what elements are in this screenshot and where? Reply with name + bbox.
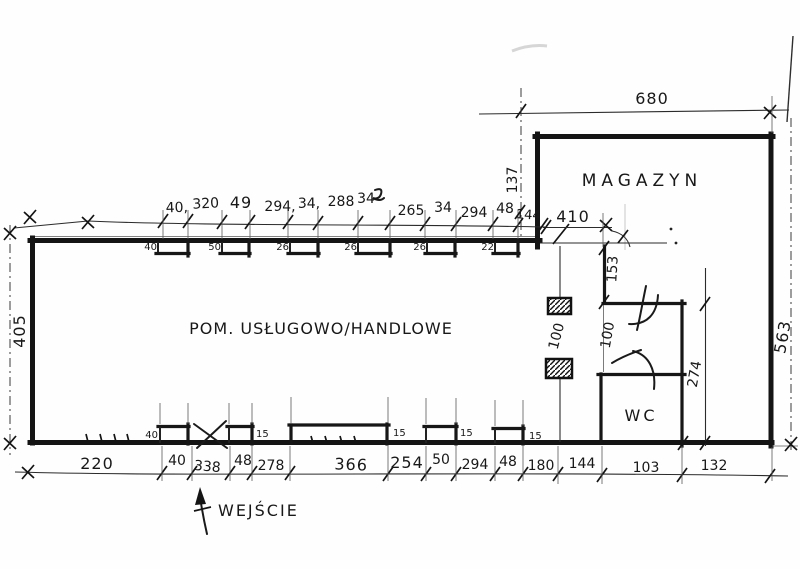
dim-137: 137 bbox=[505, 167, 521, 194]
dim-bottom-254: 254 bbox=[390, 453, 424, 472]
dim-top-320: 320 bbox=[192, 195, 220, 212]
dim-top-144: 144 bbox=[515, 207, 541, 224]
dim-top-265: 265 bbox=[398, 203, 425, 219]
dim-bottom-40: 40 bbox=[168, 453, 186, 469]
dim-405: 405 bbox=[10, 314, 29, 348]
dim-bottom-278: 278 bbox=[258, 458, 285, 474]
column-pillar-2 bbox=[546, 359, 572, 378]
dim-top-34-scribbled: 34 bbox=[357, 191, 375, 207]
dim-bottom-103: 103 bbox=[633, 460, 660, 476]
recess-top-5: 26 bbox=[413, 242, 426, 253]
dim-bottom-338: 338 bbox=[193, 458, 221, 476]
dim-bottom-132: 132 bbox=[701, 458, 728, 474]
dim-top-294b: 294 bbox=[461, 205, 488, 221]
room-label-magazyn: MAGAZYN bbox=[582, 171, 703, 191]
door-arc-wc bbox=[633, 351, 654, 389]
recess-top-3: 26 bbox=[276, 242, 289, 253]
dim-top-288: 288 bbox=[328, 194, 355, 210]
recess-bottom-1: 40 bbox=[145, 430, 158, 441]
dim-top-34a: 34, bbox=[298, 196, 320, 212]
dim-bottom-48b: 48 bbox=[499, 454, 517, 470]
dim-top-40: 40, bbox=[165, 200, 188, 217]
floor-plan-sketch: 40, 320 49 294, 34, 288 34 265 34 294 48… bbox=[0, 0, 800, 569]
dim-100-right: 100 bbox=[598, 321, 618, 350]
dim-274: 274 bbox=[685, 360, 705, 389]
entrance-annotation: WEJŚCIE bbox=[194, 487, 299, 534]
dimension-lines bbox=[4, 88, 797, 484]
room-label-wc: WC bbox=[625, 406, 658, 425]
entrance-label: WEJŚCIE bbox=[218, 501, 299, 520]
dim-top-34b: 34 bbox=[434, 200, 452, 216]
scan-artifacts bbox=[512, 36, 793, 250]
bottom-dim-line bbox=[15, 472, 788, 476]
dim-bottom-366: 366 bbox=[334, 454, 368, 474]
dim-bottom-220: 220 bbox=[80, 454, 114, 473]
dim-100-left: 100 bbox=[546, 321, 568, 351]
entrance-arrow-head-icon bbox=[195, 487, 206, 505]
bottom-dimension-labels: 220 40 338 48 278 366 254 50 294 48 180 … bbox=[80, 452, 727, 476]
recess-top-2: 50 bbox=[208, 242, 221, 253]
recess-top-1: 40 bbox=[144, 242, 157, 253]
column-pillar-1 bbox=[548, 298, 571, 314]
top-dimension-labels: 40, 320 49 294, 34, 288 34 265 34 294 48… bbox=[165, 189, 589, 226]
dim-153: 153 bbox=[604, 255, 621, 283]
dim-680: 680 bbox=[635, 89, 669, 108]
room-label-main: POM. USŁUGOWO/HANDLOWE bbox=[189, 319, 453, 338]
dim-bottom-48a: 48 bbox=[234, 453, 252, 469]
dim-bottom-180: 180 bbox=[528, 458, 555, 474]
recess-top-6: 22 bbox=[481, 242, 494, 253]
recess-bottom-5: 15 bbox=[529, 431, 542, 442]
door-swings bbox=[612, 230, 658, 389]
recess-bottom-3: 15 bbox=[393, 428, 406, 439]
dim-top-294a: 294, bbox=[264, 199, 295, 215]
plan-canvas: 40, 320 49 294, 34, 288 34 265 34 294 48… bbox=[0, 0, 800, 569]
dim-680-line bbox=[479, 110, 789, 114]
dim-bottom-144: 144 bbox=[569, 456, 596, 472]
dim-bottom-50: 50 bbox=[432, 452, 450, 468]
recess-bottom-4: 15 bbox=[460, 428, 473, 439]
recess-top-4: 26 bbox=[344, 242, 357, 253]
dim-410: 410 bbox=[556, 207, 590, 226]
recess-labels: 40 50 26 26 26 22 40 15 15 15 15 bbox=[144, 242, 541, 442]
dim-bottom-294: 294 bbox=[462, 457, 489, 473]
recess-bottom-2: 15 bbox=[256, 429, 269, 440]
dim-top-49: 49 bbox=[230, 193, 252, 212]
dim-top-48: 48 bbox=[496, 201, 514, 217]
